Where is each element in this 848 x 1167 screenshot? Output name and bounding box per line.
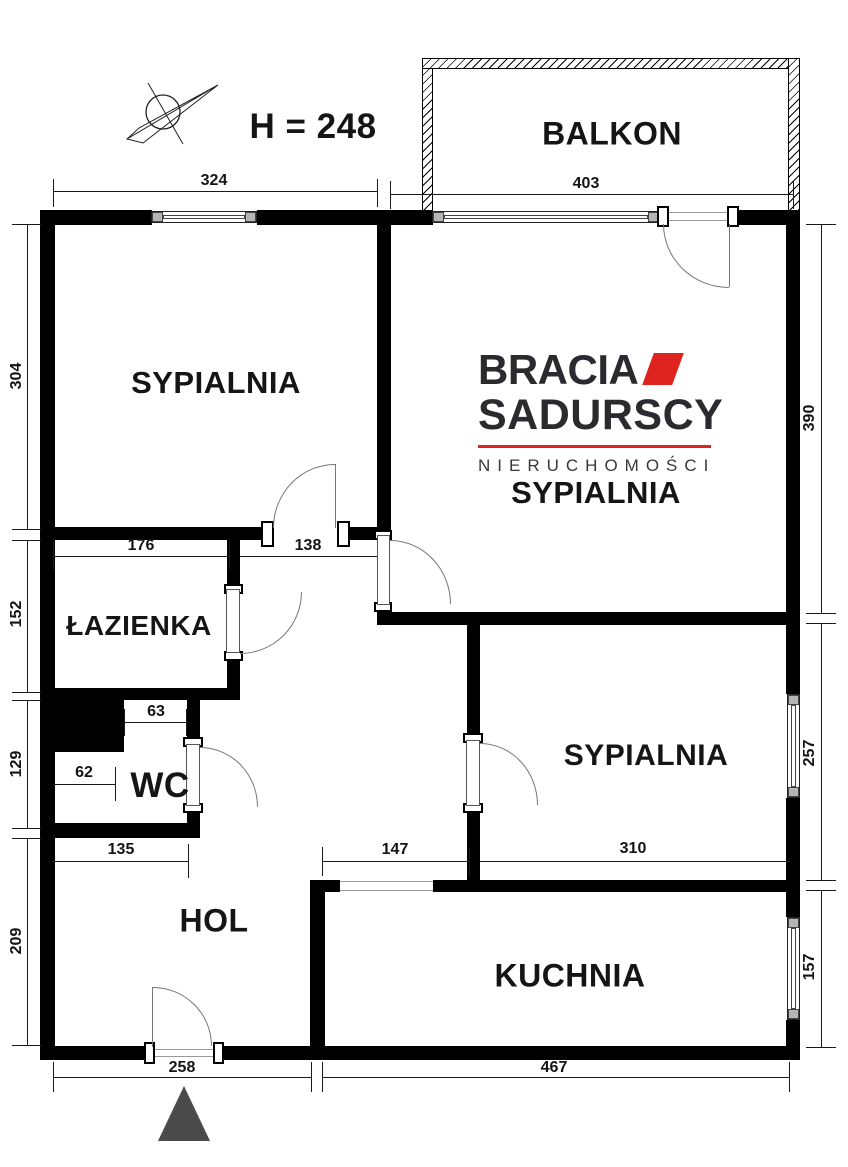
room-label-hall: HOL — [179, 903, 248, 940]
window-cap — [433, 212, 444, 222]
compass-icon — [118, 56, 222, 152]
door-leaf — [152, 987, 153, 1047]
window-glass — [444, 215, 648, 219]
dimension-line — [53, 784, 115, 785]
wall-segment — [40, 688, 240, 700]
wall-segment — [377, 612, 786, 625]
dimension-tick — [789, 1062, 790, 1092]
dimension-label: 304 — [8, 363, 26, 390]
dimension-line — [480, 861, 790, 862]
balcony-window — [432, 211, 660, 223]
dimension-tick — [124, 709, 125, 736]
window-cap — [788, 918, 799, 928]
window-cap — [788, 1009, 799, 1019]
door-leaf — [377, 535, 390, 605]
dimension-label: 209 — [8, 928, 26, 955]
dimension-tick — [12, 700, 42, 701]
dimension-tick — [806, 224, 836, 225]
window-cap — [152, 212, 163, 222]
door-swing-arc — [153, 987, 212, 1046]
wall-segment — [786, 798, 800, 917]
dimension-line — [821, 224, 822, 613]
room-label-balcony: BALKON — [542, 116, 682, 153]
dimension-line — [53, 861, 188, 862]
dimension-label: 390 — [801, 405, 819, 432]
dimension-tick — [806, 623, 836, 624]
window-glass — [163, 215, 245, 219]
dimension-tick — [12, 692, 42, 693]
dimension-tick — [188, 844, 189, 878]
dimension-label: 147 — [382, 841, 409, 859]
dimension-line — [124, 722, 187, 723]
window-glass — [791, 928, 796, 1009]
door-jamb — [337, 521, 350, 547]
dimension-label: 138 — [295, 537, 322, 555]
wall-segment — [257, 210, 391, 225]
door-swing-arc — [663, 224, 729, 288]
dimension-tick — [793, 181, 794, 209]
dimension-line — [27, 540, 28, 692]
wall-segment — [40, 210, 55, 1060]
dimension-tick — [53, 1062, 54, 1092]
dimension-tick — [53, 542, 54, 570]
agency-logo-line2: SADURSCY — [478, 394, 738, 437]
dimension-tick — [12, 1045, 42, 1046]
dimension-label: 258 — [169, 1059, 196, 1077]
dimension-label: 135 — [108, 841, 135, 859]
dimension-line — [322, 861, 469, 862]
window — [151, 211, 257, 223]
door-leaf — [466, 740, 480, 806]
dimension-line — [53, 556, 229, 557]
dimension-tick — [806, 1047, 836, 1048]
window-cap — [788, 695, 799, 705]
dimension-tick — [322, 1062, 323, 1092]
duct-shaft — [50, 700, 124, 752]
dimension-label: 176 — [128, 537, 155, 555]
kitchen-passage — [340, 881, 433, 891]
dimension-tick — [229, 542, 230, 570]
dimension-tick — [469, 847, 470, 876]
room-label-kitchen: KUCHNIA — [494, 958, 645, 995]
dimension-tick — [12, 540, 42, 541]
balcony-wall — [788, 58, 800, 215]
door-swing-arc — [240, 592, 302, 654]
window — [787, 917, 800, 1020]
wall-segment — [467, 625, 480, 740]
room-label-bedroom1: SYPIALNIA — [131, 365, 301, 401]
door-swing-arc — [390, 540, 451, 604]
wall-segment — [40, 1046, 150, 1060]
dimension-line — [390, 194, 793, 195]
wall-segment — [40, 823, 200, 838]
balcony-door-threshold — [662, 212, 730, 221]
entrance-threshold — [155, 1049, 213, 1057]
floor-plan: H = 248 — [0, 0, 848, 1167]
ceiling-height-label: H = 248 — [249, 107, 376, 147]
dimension-line — [27, 838, 28, 1045]
dimension-label: 467 — [541, 1059, 568, 1077]
agency-logo: BRACIA SADURSCY NIERUCHOMOŚCI — [478, 352, 738, 476]
dimension-tick — [12, 529, 42, 530]
dimension-label: 157 — [801, 954, 819, 981]
wall-segment — [40, 210, 152, 225]
wall-segment — [310, 880, 325, 1046]
dimension-tick — [12, 224, 42, 225]
window-cap — [245, 212, 256, 222]
wall-segment — [786, 210, 800, 694]
balcony-wall — [422, 58, 800, 69]
wall-segment — [433, 880, 786, 892]
door-swing-arc — [480, 743, 538, 805]
door-swing-arc — [200, 747, 258, 807]
balcony-wall — [422, 58, 433, 215]
room-label-bedroom3: SYPIALNIA — [564, 739, 729, 773]
dimension-label: 63 — [147, 703, 165, 721]
dimension-label: 403 — [573, 175, 600, 193]
dimension-line — [53, 191, 377, 192]
agency-logo-line1: BRACIA — [478, 349, 638, 391]
door-leaf — [729, 224, 730, 287]
entrance-marker-triangle — [158, 1086, 210, 1141]
dimension-label: 324 — [201, 172, 228, 190]
dimension-line — [821, 623, 822, 880]
agency-logo-tagline: NIERUCHOMOŚCI — [478, 456, 738, 476]
dimension-label: 152 — [8, 601, 26, 628]
wall-segment — [377, 210, 391, 533]
dimension-tick — [806, 890, 836, 891]
dimension-line — [821, 890, 822, 1047]
dimension-line — [322, 1077, 789, 1078]
window-glass — [791, 705, 796, 787]
dimension-tick — [322, 847, 323, 876]
window-cap — [788, 787, 799, 797]
dimension-line — [27, 700, 28, 828]
dimension-tick — [377, 179, 378, 207]
dimension-label: 62 — [75, 764, 93, 782]
dimension-tick — [12, 828, 42, 829]
dimension-line — [240, 556, 377, 557]
room-label-bathroom: ŁAZIENKA — [66, 610, 212, 642]
wall-segment — [218, 1046, 800, 1060]
window — [787, 694, 800, 798]
logo-divider — [478, 445, 711, 448]
dimension-label: 129 — [8, 751, 26, 778]
door-swing-arc — [273, 464, 335, 528]
dimension-label: 257 — [801, 740, 819, 767]
dimension-tick — [186, 709, 187, 736]
dimension-tick — [390, 181, 391, 209]
door-jamb — [213, 1042, 224, 1064]
dimension-tick — [311, 1062, 312, 1092]
room-label-wc: WC — [130, 766, 189, 806]
dimension-line — [53, 1077, 311, 1078]
dimension-tick — [806, 880, 836, 881]
room-label-bedroom2: SYPIALNIA — [511, 475, 681, 511]
logo-red-flag-icon — [643, 353, 685, 385]
door-leaf — [335, 464, 336, 528]
wall-segment — [391, 210, 433, 225]
dimension-tick — [53, 179, 54, 207]
dimension-tick — [806, 613, 836, 614]
dimension-tick — [115, 767, 116, 801]
door-leaf — [226, 589, 240, 653]
dimension-tick — [12, 838, 42, 839]
dimension-line — [27, 224, 28, 529]
dimension-label: 310 — [620, 840, 647, 858]
